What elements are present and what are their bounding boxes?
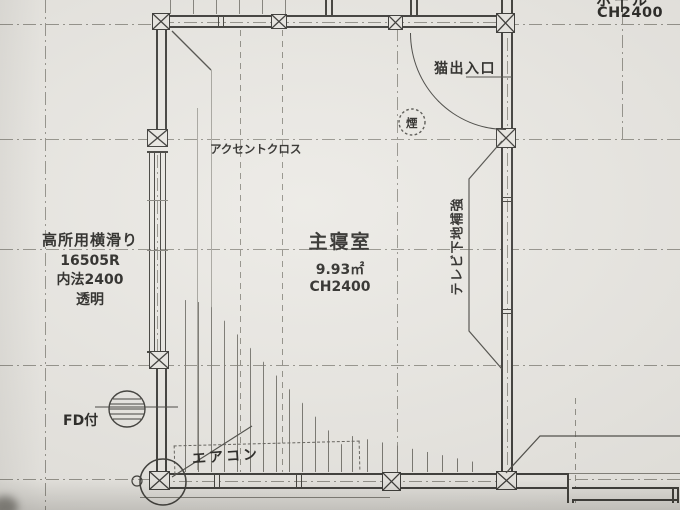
wall-top-centerline	[161, 22, 507, 23]
br-window-cap-3	[672, 487, 674, 503]
wall-bottom-tick-2a	[296, 473, 297, 489]
wall-right-tick-1b	[501, 201, 513, 202]
right-wall-up-a	[501, 0, 503, 14]
wall-stub-2a	[410, 0, 412, 15]
wall-top	[155, 15, 515, 28]
br-window-cap-4	[677, 487, 679, 503]
wall-right-tick-2a	[501, 309, 513, 310]
bottom-right-leader-line	[506, 436, 680, 473]
wall-left-lower	[156, 367, 167, 473]
column-marker	[271, 14, 287, 29]
door-swing-arc	[410, 33, 506, 130]
left-window-inner-label: 内法2400	[28, 269, 152, 289]
stair-line-6	[285, 0, 286, 14]
slope-hatch-right	[352, 436, 474, 472]
stair-line-2	[193, 0, 194, 14]
column-marker	[388, 15, 403, 30]
left-window-line-4	[165, 151, 166, 353]
detail-callout-dot	[132, 476, 142, 486]
smoke-detector-label: 煙	[406, 115, 418, 131]
left-window-type-label: 高所用横滑り	[28, 229, 152, 250]
column-marker	[496, 13, 515, 33]
cat-door-label: 猫出入口	[434, 58, 496, 78]
wall-stub-1b	[331, 0, 333, 15]
column-marker	[149, 471, 170, 490]
wall-stub-1a	[325, 0, 327, 15]
x-mark-icon	[383, 473, 400, 490]
column-marker	[147, 129, 168, 147]
stair-line-4	[239, 0, 240, 14]
corner-diagonal-topleft	[172, 31, 211, 70]
left-window-label-block: 高所用横滑り 16505R 内法2400 透明	[28, 229, 152, 309]
grid-line-v5	[622, 12, 623, 142]
left-window-centerline	[157, 155, 158, 351]
left-window-line-3	[160, 151, 161, 353]
br-window-cap-1	[567, 473, 569, 503]
x-mark-icon	[497, 472, 516, 489]
wall-bottom-tick-1a	[214, 473, 215, 489]
br-window-band	[572, 487, 678, 501]
wall-bottom-tick-2b	[301, 473, 302, 489]
wall-bottom-right-seg	[517, 473, 567, 489]
left-window-glass-label: 透明	[28, 289, 152, 309]
grid-line-h4	[0, 365, 680, 366]
column-marker	[496, 471, 517, 490]
room-label-block: 主寝室 9.93㎡ CH2400	[301, 227, 379, 295]
column-marker	[149, 351, 169, 369]
wall-stub-2b	[416, 0, 418, 15]
column-marker	[382, 472, 401, 491]
wall-left-upper	[156, 28, 167, 134]
grid-line-h2	[0, 139, 680, 140]
left-window-cap-top	[147, 151, 168, 153]
x-mark-icon	[150, 472, 169, 489]
grid-line-v4	[397, 28, 398, 473]
right-wall-up-b	[511, 0, 513, 14]
x-mark-icon	[389, 16, 402, 29]
stair-line-1	[170, 0, 171, 14]
left-window-sash-tick-1	[147, 200, 168, 201]
balcony-edge-line	[140, 497, 390, 498]
stair-line-3	[216, 0, 217, 14]
left-window-code-label: 16505R	[28, 253, 152, 269]
wall-right-tick-2b	[501, 313, 513, 314]
x-mark-icon	[497, 14, 514, 32]
floor-plan: ホール CH2400 猫出入口 煙 アクセントクロス 主寝室 9.93㎡ CH2…	[0, 0, 680, 510]
photo-corner-shadow	[0, 496, 18, 510]
stair-line-5	[262, 0, 263, 14]
hall-ceiling-height-label: CH2400	[597, 5, 663, 21]
room-name-label: 主寝室	[301, 227, 379, 254]
wall-top-tick-b	[223, 15, 224, 28]
tv-backing-label: テレビ下地補強	[447, 190, 466, 304]
room-area-label: 9.93㎡	[301, 259, 379, 279]
wall-top-tick-a	[218, 15, 219, 28]
fire-damper-label: FD付	[63, 410, 98, 430]
room-ceiling-height-label: CH2400	[301, 279, 379, 295]
tv-backing-bracket	[469, 141, 502, 369]
column-marker	[152, 13, 170, 30]
wall-right-centerline	[507, 38, 508, 466]
x-mark-icon	[153, 14, 169, 29]
x-mark-icon	[497, 129, 515, 147]
x-mark-icon	[150, 352, 168, 368]
left-window-line-2	[154, 151, 155, 353]
bottom-right-face-line	[567, 473, 680, 474]
accent-cloth-label: アクセントクロス	[210, 141, 301, 157]
wall-right-tick-1a	[501, 197, 513, 198]
column-marker	[496, 128, 516, 148]
x-mark-icon	[272, 15, 286, 28]
wall-bottom-tick-1b	[219, 473, 220, 489]
x-mark-icon	[148, 130, 167, 146]
